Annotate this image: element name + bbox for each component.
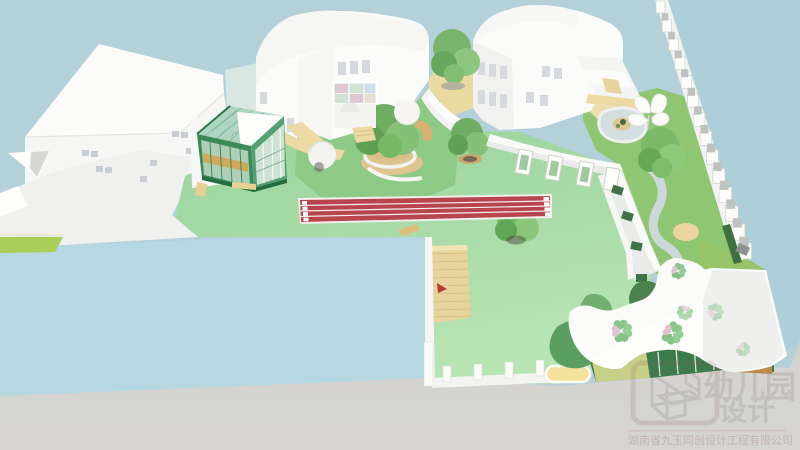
svg-text:设计: 设计 [719,395,775,426]
svg-text:湖南省九玉同创设计工程有限公司: 湖南省九玉同创设计工程有限公司 [628,433,793,447]
